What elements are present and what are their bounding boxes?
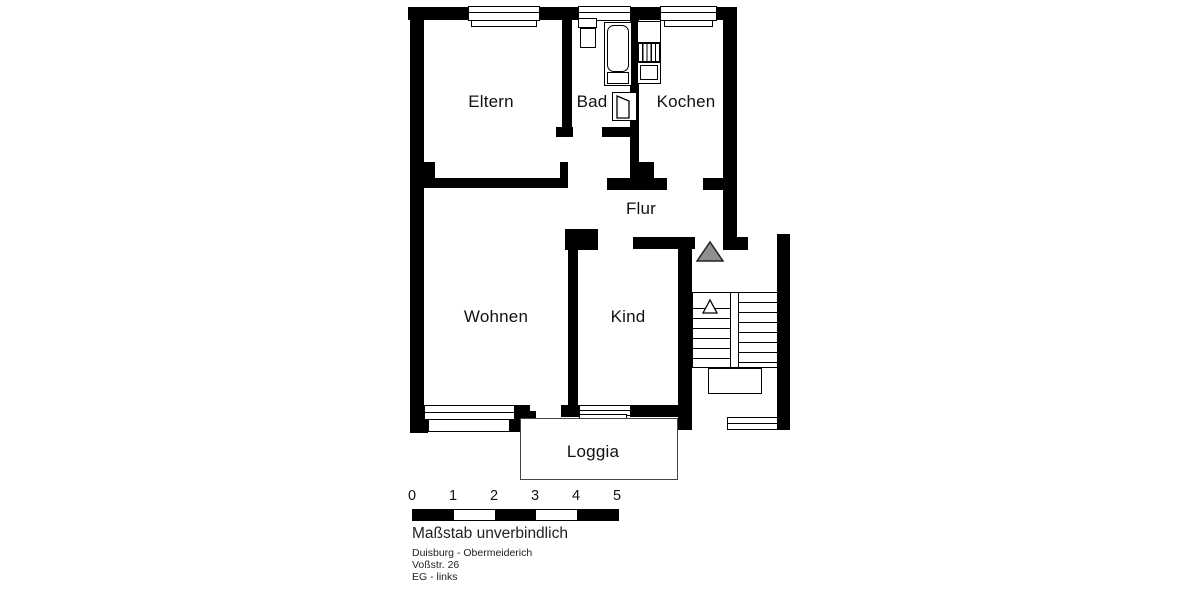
wall-bad-kochen-foot xyxy=(634,162,654,179)
wall-wohnen-bottom-nub xyxy=(530,411,536,418)
room-label-wohnen: Wohnen xyxy=(464,307,528,327)
window-kochen xyxy=(660,6,717,21)
chimney-block xyxy=(565,229,598,250)
stairs-landing xyxy=(708,368,762,394)
plan-line xyxy=(468,12,540,13)
room-label-kind: Kind xyxy=(611,307,646,327)
plan-line xyxy=(579,410,631,411)
wall-bad-bottom xyxy=(602,127,633,137)
kitchen-sink-basin xyxy=(640,65,658,80)
wall-eltern-bottom-stub xyxy=(560,162,568,179)
room-label-bad: Bad xyxy=(577,92,608,112)
scale-number-2: 2 xyxy=(490,488,498,504)
scale-segment-1 xyxy=(454,510,495,520)
scale-note: Maßstab unverbindlich xyxy=(412,525,568,543)
plan-line xyxy=(660,12,717,13)
scale-bar xyxy=(412,509,619,521)
room-label-eltern: Eltern xyxy=(468,92,514,112)
kitchen-stove xyxy=(637,43,661,62)
room-label-flur: Flur xyxy=(626,199,656,219)
plan-line xyxy=(692,338,730,339)
wall-bottom-left-corner xyxy=(410,420,428,433)
scale-segment-4 xyxy=(577,510,618,520)
wall-kind-bottom xyxy=(630,405,680,417)
room-label-loggia: Loggia xyxy=(567,442,619,462)
plan-line xyxy=(739,332,777,333)
scale-number-5: 5 xyxy=(613,488,621,504)
wall-kind-left xyxy=(568,248,578,408)
window-wohnen-sill xyxy=(428,419,510,432)
wall-stairwell-right xyxy=(777,234,790,430)
scale-number-3: 3 xyxy=(531,488,539,504)
address-line-floor: EG - links xyxy=(412,571,532,583)
scale-segment-0 xyxy=(413,510,454,520)
scale-number-4: 4 xyxy=(572,488,580,504)
entrance-arrow xyxy=(697,242,723,261)
window-eltern xyxy=(468,6,540,21)
plan-line xyxy=(692,318,730,319)
plan-line xyxy=(692,308,730,309)
wall-left-notch xyxy=(424,162,435,178)
wall-eltern-right xyxy=(562,20,572,137)
plan-line xyxy=(692,358,730,359)
washbasin xyxy=(580,28,596,48)
scale-segment-3 xyxy=(536,510,577,520)
wall-left xyxy=(410,7,424,433)
room-label-kochen: Kochen xyxy=(657,92,716,112)
address-line-street: Voßstr. 26 xyxy=(412,559,532,571)
plan-line xyxy=(739,342,777,343)
window-kochen-sill xyxy=(664,20,713,27)
plan-line xyxy=(739,302,777,303)
plan-line xyxy=(692,348,730,349)
stairs-stringer xyxy=(730,292,739,368)
wall-flur-top-left xyxy=(607,178,667,190)
address-block: Duisburg - Obermeiderich Voßstr. 26 EG -… xyxy=(412,547,532,583)
plan-line xyxy=(739,322,777,323)
scale-number-0: 0 xyxy=(408,488,416,504)
floor-plan-page: ElternBadKochenFlurWohnenKindLoggia 0123… xyxy=(0,0,1200,600)
wall-right-foot xyxy=(723,237,748,250)
wall-eltern-right-foot xyxy=(556,127,573,137)
scale-segment-2 xyxy=(495,510,536,520)
plan-line xyxy=(739,362,777,363)
bathtub-foot xyxy=(607,72,629,84)
washbasin-top xyxy=(578,18,597,28)
bathtub-inner xyxy=(607,25,629,72)
wall-top-2 xyxy=(540,7,578,20)
bad-door-frame xyxy=(612,92,637,121)
plan-line xyxy=(739,352,777,353)
plan-line xyxy=(739,312,777,313)
window-eltern-sill xyxy=(471,20,537,27)
wall-right xyxy=(723,7,737,250)
plan-line xyxy=(424,412,515,413)
plan-line xyxy=(727,423,778,424)
wall-stairwell-left xyxy=(678,237,692,430)
kitchen-counter xyxy=(637,21,661,43)
plan-line xyxy=(692,328,730,329)
wall-eltern-bottom xyxy=(424,178,568,188)
address-line-city: Duisburg - Obermeiderich xyxy=(412,547,532,559)
scale-number-1: 1 xyxy=(449,488,457,504)
plan-line xyxy=(578,12,631,13)
